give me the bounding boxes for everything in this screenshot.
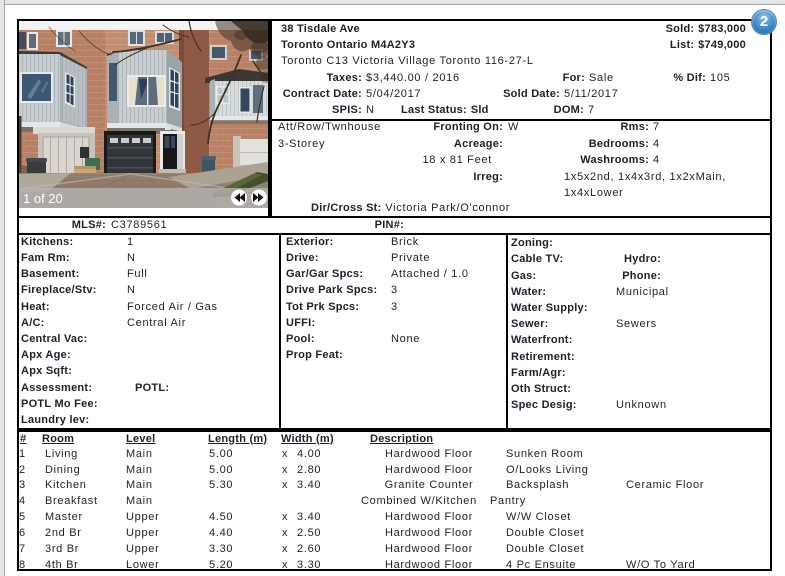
svg-text:1 of 20: 1 of 20 xyxy=(23,191,63,206)
